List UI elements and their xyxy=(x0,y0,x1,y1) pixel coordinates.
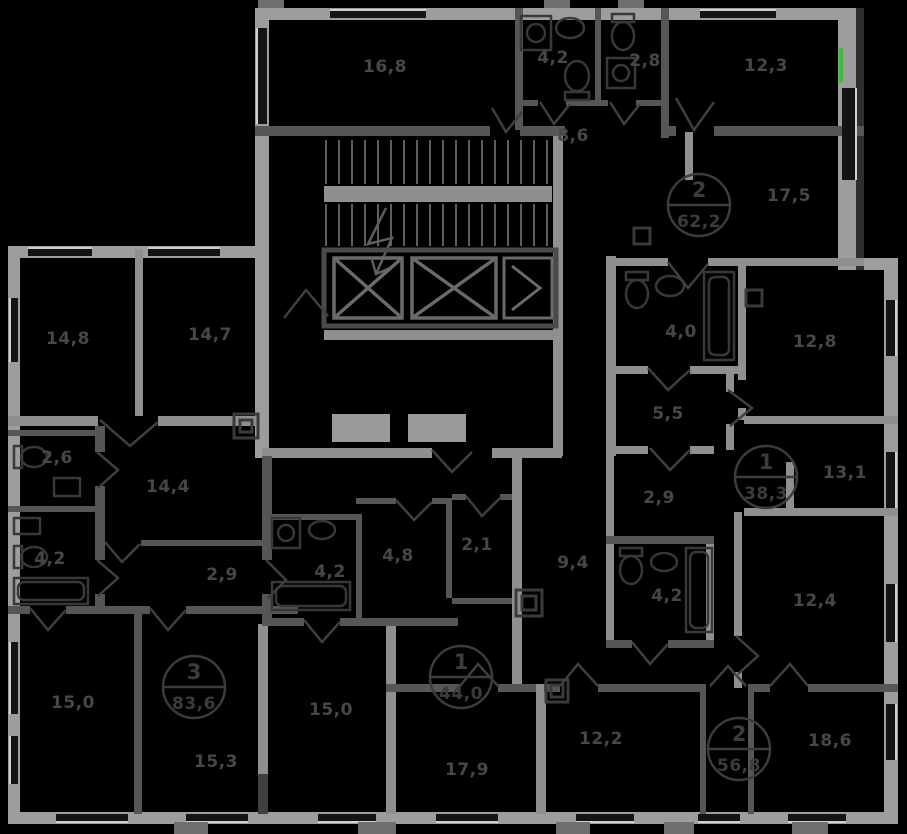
stair-landing xyxy=(324,186,552,202)
room-area-label: 12,4 xyxy=(793,591,837,611)
toilet-icon xyxy=(626,280,648,308)
lobby-threshold-1 xyxy=(332,414,390,442)
room-area-label: 17,9 xyxy=(445,760,489,780)
sink-icon xyxy=(54,478,80,496)
bathtub-inner-icon xyxy=(709,277,729,355)
door-swing xyxy=(30,608,66,630)
wall-dark-segment xyxy=(258,774,268,814)
lobby-threshold-2 xyxy=(408,414,466,442)
door-swing xyxy=(648,368,690,390)
washer-drum-icon xyxy=(613,65,629,81)
room-area-label: 4,2 xyxy=(34,549,66,569)
apartment-total-area: 44,0 xyxy=(439,684,483,704)
washer-icon xyxy=(521,16,551,50)
room-area-label: 5,5 xyxy=(652,404,684,424)
door-swing xyxy=(770,664,808,686)
room-area-label: 15,0 xyxy=(51,693,95,713)
room-area-label: 17,5 xyxy=(767,186,811,206)
elevator-1 xyxy=(334,258,402,318)
room-area-label: 4,2 xyxy=(651,586,683,606)
door-swing xyxy=(97,452,118,488)
door-swing xyxy=(650,448,690,470)
room-area-label: 15,0 xyxy=(309,700,353,720)
apartment-total-area: 56,8 xyxy=(717,756,761,776)
room-area-label: 8,6 xyxy=(557,126,589,146)
room-area-label: 12,2 xyxy=(579,729,623,749)
room-area-label: 12,8 xyxy=(793,332,837,352)
apartment-badge: 256,8 xyxy=(708,718,770,780)
room-area-label: 2,9 xyxy=(206,565,238,585)
apartment-room-count: 2 xyxy=(732,722,747,746)
bathtub-inner-icon xyxy=(690,552,708,628)
room-area-label: 4,0 xyxy=(665,322,697,342)
room-area-label: 2,9 xyxy=(643,488,675,508)
room-area-label: 16,8 xyxy=(363,57,407,77)
room-area-label: 18,6 xyxy=(808,731,852,751)
door-swing xyxy=(105,542,140,562)
door-swing xyxy=(284,290,328,318)
outer-wall-edge xyxy=(856,8,864,270)
toilet-icon xyxy=(612,22,634,50)
door-swing xyxy=(540,102,570,124)
room-area-label: 14,4 xyxy=(146,477,190,497)
door-swing xyxy=(610,102,640,124)
floor-plan: 16,84,22,812,38,617,54,012,85,514,814,72… xyxy=(0,0,907,834)
room-area-label: 2,8 xyxy=(629,51,661,71)
door-swing xyxy=(432,450,472,472)
door-swing xyxy=(304,620,340,642)
sink-icon xyxy=(556,18,584,38)
apartment-badge: 262,2 xyxy=(668,174,730,236)
apartment-room-count: 1 xyxy=(759,450,774,474)
door-swing xyxy=(466,496,500,516)
bathtub-inner-icon xyxy=(18,582,84,600)
room-area-label: 15,3 xyxy=(194,752,238,772)
apartment-room-count: 1 xyxy=(454,650,469,674)
service-shaft xyxy=(504,258,552,318)
bathtub-inner-icon xyxy=(276,586,346,606)
door-swing xyxy=(396,500,432,520)
room-area-label: 13,1 xyxy=(823,463,867,483)
apartment-badge: 144,0 xyxy=(430,646,492,708)
apartment-badge: 138,3 xyxy=(735,446,797,508)
stair-direction-arrow xyxy=(368,208,392,274)
washer-drum-icon xyxy=(278,525,294,541)
door-swing xyxy=(97,560,118,596)
elevator-2 xyxy=(412,258,496,318)
washer-icon xyxy=(272,518,300,548)
room-area-label: 4,8 xyxy=(382,546,414,566)
door-swing xyxy=(736,636,758,674)
door-swing xyxy=(100,420,158,446)
washer-drum-icon xyxy=(527,24,545,42)
room-area-label: 12,3 xyxy=(744,56,788,76)
toilet-icon xyxy=(620,556,642,584)
door-swing xyxy=(632,642,668,664)
toilet-tank-icon xyxy=(565,92,589,100)
room-area-label: 2,6 xyxy=(41,448,73,468)
room-area-label: 14,8 xyxy=(46,329,90,349)
room-area-label: 9,4 xyxy=(557,553,589,573)
highlighted-window-segment xyxy=(839,48,843,82)
elevator-shaft xyxy=(324,250,556,326)
apartment-badge: 383,6 xyxy=(163,656,225,718)
door-swing xyxy=(150,608,186,630)
apartment-room-count: 2 xyxy=(692,178,707,202)
floorplan-stage: 16,84,22,812,38,617,54,012,85,514,814,72… xyxy=(0,0,907,834)
room-area-label: 2,1 xyxy=(461,535,493,555)
room-area-label: 14,7 xyxy=(188,325,232,345)
apartment-total-area: 62,2 xyxy=(677,212,721,232)
sink-icon xyxy=(309,521,335,539)
door-swing xyxy=(676,98,714,130)
elevator-lobby-sill xyxy=(324,330,556,340)
stair-core xyxy=(324,140,556,442)
door-swing xyxy=(668,262,708,288)
apartment-total-area: 83,6 xyxy=(172,694,216,714)
room-area-label: 4,2 xyxy=(537,48,569,68)
sink-icon xyxy=(651,553,677,571)
apartment-total-area: 38,3 xyxy=(744,484,788,504)
room-area-label: 4,2 xyxy=(314,562,346,582)
apartment-room-count: 3 xyxy=(187,660,202,684)
door-swing xyxy=(560,664,598,686)
